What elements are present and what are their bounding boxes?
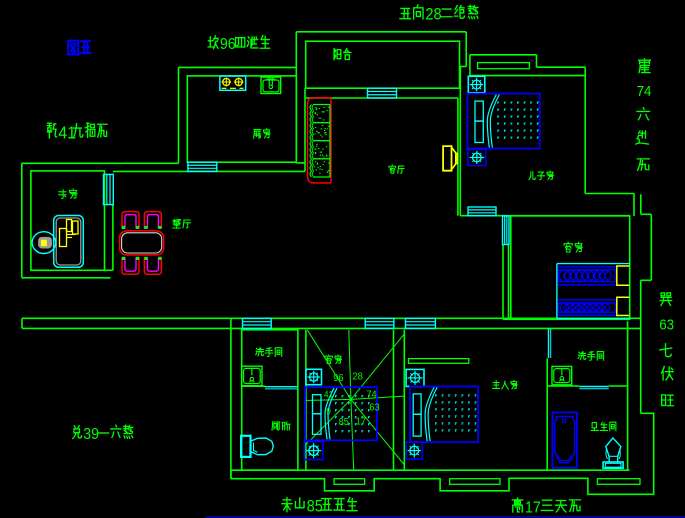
svg-text:41: 41: [58, 122, 76, 142]
svg-text:39: 39: [83, 426, 99, 443]
svg-text:41: 41: [324, 389, 333, 399]
svg-text:63: 63: [659, 317, 674, 334]
svg-text:85: 85: [339, 417, 349, 428]
svg-text:63: 63: [369, 403, 379, 414]
svg-text:96: 96: [333, 373, 343, 384]
svg-text:9: 9: [326, 406, 331, 416]
svg-text:17: 17: [356, 416, 366, 427]
svg-text:74: 74: [637, 83, 652, 100]
svg-text:96: 96: [220, 36, 236, 53]
svg-text:85: 85: [307, 498, 323, 516]
svg-text:28: 28: [353, 372, 363, 383]
svg-text:28: 28: [425, 6, 441, 24]
svg-text:17: 17: [525, 499, 541, 516]
svg-text:74: 74: [366, 389, 376, 400]
